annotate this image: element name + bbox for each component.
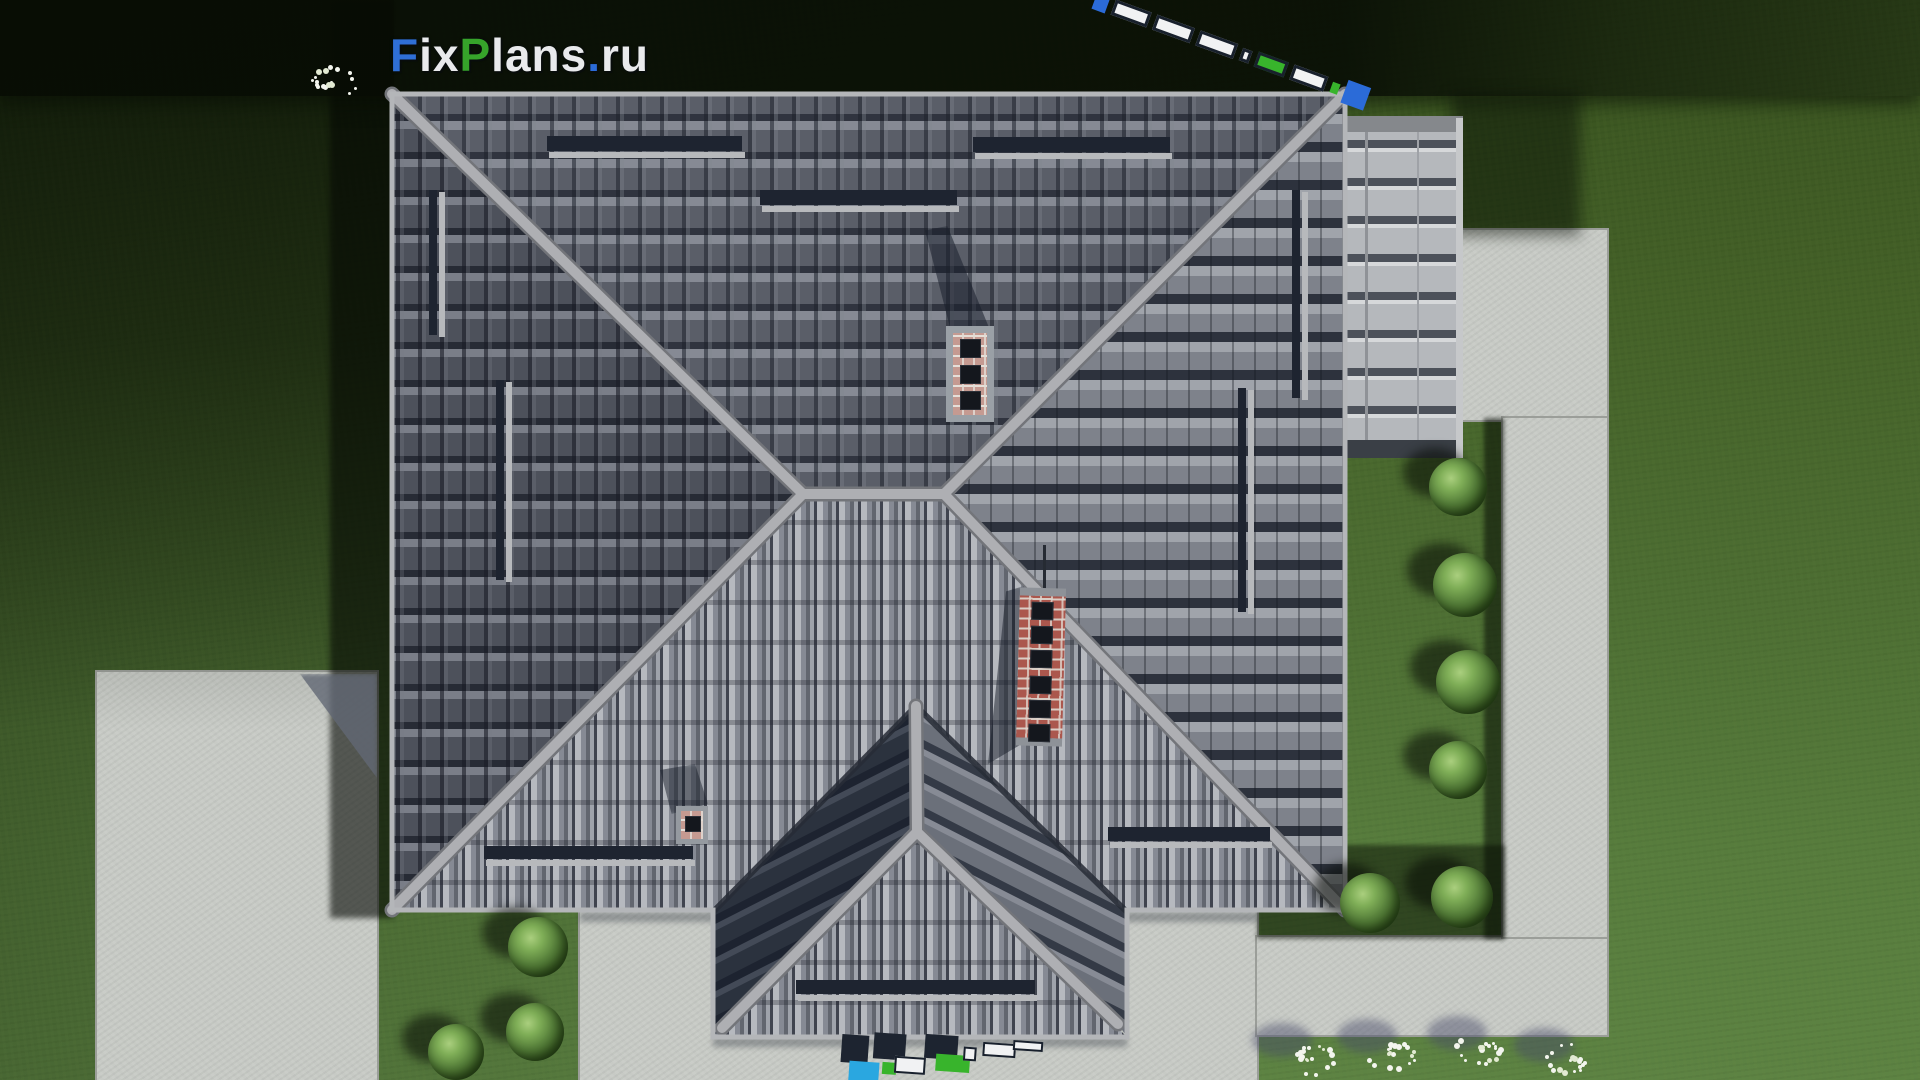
brand-part: ix <box>419 29 459 81</box>
strip-segment <box>1253 52 1289 78</box>
strip-segment <box>1239 47 1253 63</box>
flower <box>1413 1059 1416 1062</box>
flower <box>1389 1047 1392 1050</box>
strip-segment <box>1091 0 1110 13</box>
flower <box>1325 1065 1330 1070</box>
strip-segment <box>848 1061 879 1080</box>
flower <box>1454 1043 1460 1049</box>
flower <box>1304 1072 1308 1076</box>
flower <box>1410 1054 1414 1058</box>
flower <box>1372 1063 1377 1068</box>
brand-part: ru <box>601 29 649 81</box>
strip-segment <box>840 1034 869 1064</box>
flower <box>1550 1051 1554 1055</box>
flower <box>1310 1057 1314 1061</box>
brand-part: F <box>390 29 419 81</box>
strip-segment <box>1289 65 1328 92</box>
flower <box>321 84 326 89</box>
flower <box>1301 1049 1306 1054</box>
flower <box>1496 1050 1502 1056</box>
flower <box>1573 1070 1576 1073</box>
flower <box>1408 1062 1411 1065</box>
flower <box>1578 1065 1582 1069</box>
flower <box>1560 1044 1563 1047</box>
flower <box>1388 1051 1392 1055</box>
fixplans-watermark: FixPlans.ru <box>390 28 649 82</box>
brand-part: lans <box>491 29 587 81</box>
flower <box>1322 1048 1325 1051</box>
flower <box>348 71 352 75</box>
flower <box>1487 1044 1491 1048</box>
flower <box>1579 1069 1582 1072</box>
flower <box>314 76 317 79</box>
flower <box>1494 1057 1499 1062</box>
strip-segment <box>1329 81 1340 94</box>
flower-shadow <box>1514 1028 1574 1062</box>
flower <box>311 79 314 82</box>
flower <box>1477 1061 1481 1065</box>
aerial-render: FixPlans.ru <box>0 0 1920 1080</box>
strip-segment <box>894 1056 926 1075</box>
flower <box>1387 1065 1393 1071</box>
flower <box>1367 1058 1372 1063</box>
strip-segment <box>1013 1040 1044 1052</box>
flower <box>323 68 329 74</box>
flower <box>1464 1059 1467 1062</box>
flower-beds <box>0 0 1920 1080</box>
flower <box>1329 1052 1335 1058</box>
flower <box>1314 1073 1318 1077</box>
flower <box>1551 1068 1556 1073</box>
brand-part: . <box>587 29 601 81</box>
flower <box>354 87 357 90</box>
flower <box>1331 1061 1336 1066</box>
strip-segment <box>982 1042 1016 1058</box>
flower <box>1405 1045 1410 1050</box>
flower <box>316 69 322 75</box>
flower <box>1307 1046 1311 1050</box>
flower <box>1460 1054 1463 1057</box>
flower <box>350 77 354 81</box>
brand-part: P <box>459 29 491 81</box>
strip-segment <box>1111 0 1152 28</box>
flower <box>1396 1066 1402 1072</box>
flower <box>1318 1045 1321 1048</box>
flower <box>1487 1058 1492 1063</box>
flower <box>1299 1054 1305 1060</box>
flower <box>1396 1044 1402 1050</box>
strip-segment <box>963 1047 977 1062</box>
strip-segment <box>1340 80 1371 111</box>
flower <box>348 92 351 95</box>
flower <box>335 67 340 72</box>
